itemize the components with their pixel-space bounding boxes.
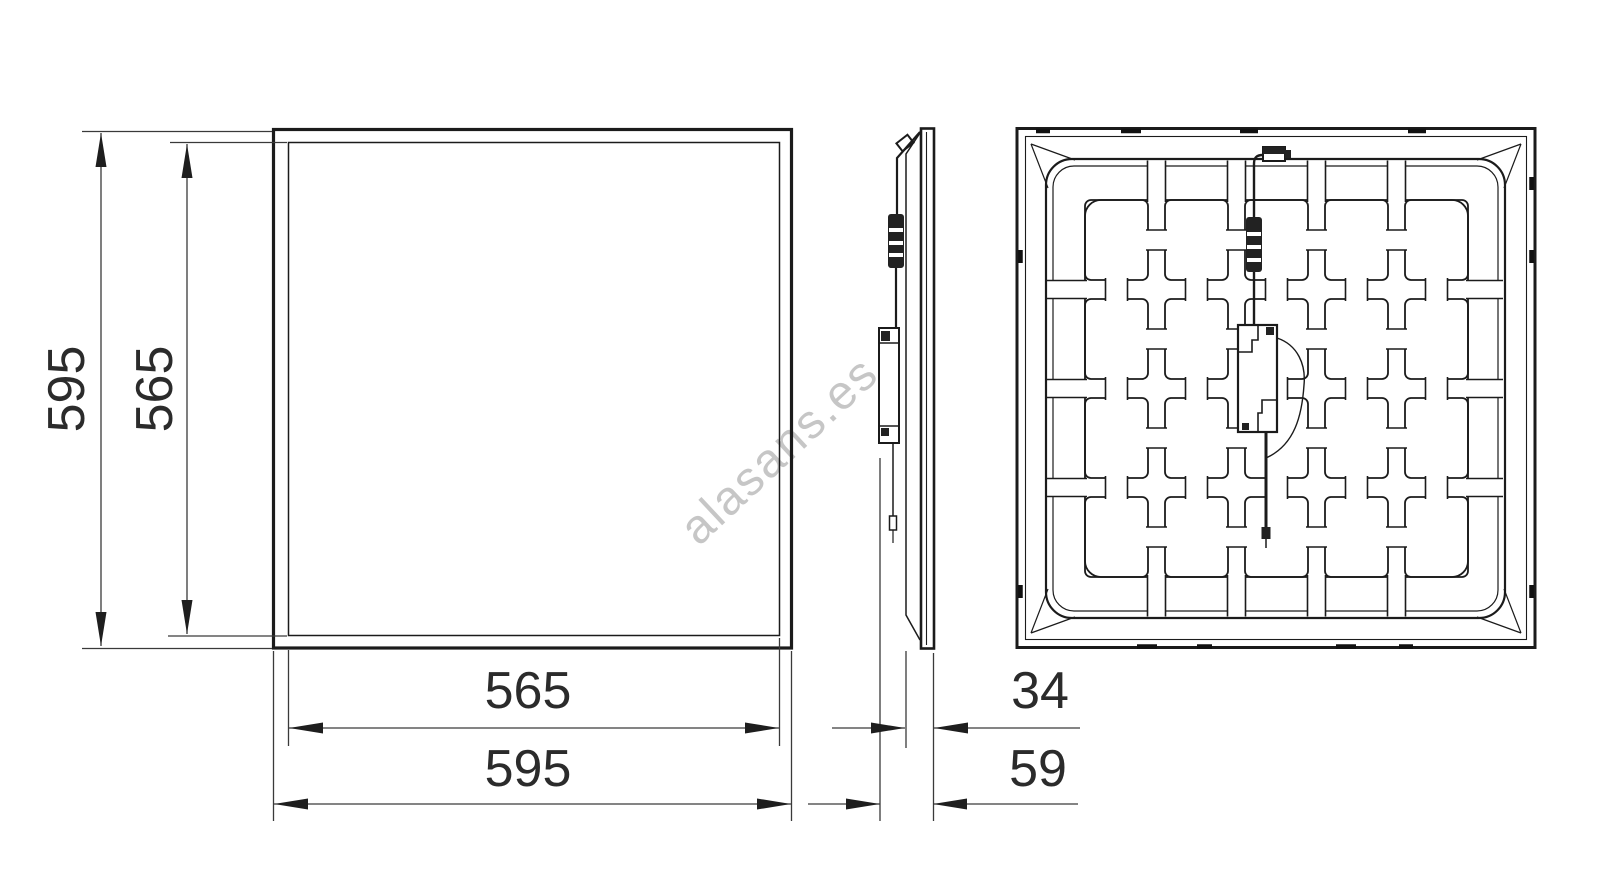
grid-bridge [1306,527,1327,547]
grid-square [1165,299,1228,379]
back-plug-bottom [1262,527,1271,539]
grid-bridge [1306,230,1327,250]
dim-label-depth-panel: 34 [1011,662,1069,720]
side-plug [890,516,897,530]
technical-drawing-page: alasans.es [0,0,1600,892]
back-view [1017,129,1535,648]
grid-square [1085,299,1148,379]
grid-bridge [1306,428,1327,448]
supply-plug-cap [1263,147,1285,154]
grid-bridge [1386,329,1407,349]
grid-bridge [1186,377,1208,400]
dim-label-height-inner: 565 [126,346,184,433]
side-cable-top [897,132,920,214]
grid-bridge [1226,230,1247,250]
side-panel-profile [921,129,934,649]
ext-lines-left [82,132,287,649]
grid-square [1165,398,1228,478]
grid-square [1165,200,1228,280]
dim-label-depth-total: 59 [1009,740,1067,798]
grid-square [1405,497,1468,577]
grid-square [1405,299,1468,379]
grid-tab [1228,162,1246,203]
grid-tab [1048,479,1088,497]
grid-square [1245,497,1308,577]
grid-bridge [1426,377,1448,400]
grid-bridge [1386,428,1407,448]
grid-bridge [1386,527,1407,547]
side-diffuser-edge [906,133,920,640]
grid-bridge [1426,476,1448,499]
grid-tab [1148,575,1166,616]
grid-tab [1228,575,1246,616]
grid-bridge [1146,329,1167,349]
grid-tab [1308,162,1326,203]
back-inline-connector [1246,217,1262,272]
grid-bridge [1146,527,1167,547]
grid-bridge [1146,230,1167,250]
grid-square [1325,398,1388,478]
grid-tab [1048,281,1088,299]
dim-label-width-outer: 595 [485,740,572,798]
grid-bridge [1346,278,1368,301]
driver-terminal-bottom [1242,423,1249,430]
side-driver-latch-top [881,331,890,341]
supply-plug-nub [1285,150,1291,158]
front-inner-panel [289,143,780,636]
grid-bridge [1266,278,1288,301]
grid-bridge [1106,377,1128,400]
dim-label-width-inner: 565 [485,662,572,720]
grid-square [1165,497,1228,577]
grid-tab [1308,575,1326,616]
grid-square [1085,398,1148,478]
grid-bridge [1106,476,1128,499]
grid-tab [1466,281,1503,299]
back-cable-top [1254,155,1263,217]
side-driver-latch-bottom [881,428,889,436]
grid-square [1085,497,1148,577]
grid-bridge [1146,428,1167,448]
grid-bridge [1106,278,1128,301]
technical-drawing: alasans.es [0,0,1600,892]
grid-tab [1148,162,1166,203]
grid-bridge [1226,527,1247,547]
grid-bridge [1186,278,1208,301]
dimensions [82,132,1080,822]
grid-bridge [1346,377,1368,400]
grid-square [1325,299,1388,379]
grid-bridge [1426,278,1448,301]
front-outer-frame [274,130,792,649]
driver-terminal-top [1266,327,1274,335]
grid-tab [1466,380,1503,398]
grid-square [1325,497,1388,577]
grid-bridge [1346,476,1368,499]
dim-label-height-outer: 595 [38,346,96,433]
grid-bridge [1386,230,1407,250]
grid-square [1405,200,1468,280]
grid-square [1325,200,1388,280]
grid-bridge [1266,476,1288,499]
grid-square [1085,200,1148,280]
grid-tab [1466,479,1503,497]
front-view [274,130,792,649]
grid-tab [1388,575,1406,616]
grid-square [1405,398,1468,478]
side-view [879,129,934,649]
side-inline-connector [888,214,904,268]
grid-tab [1388,162,1406,203]
grid-tab [1048,380,1088,398]
grid-bridge [1186,476,1208,499]
grid-bridge [1306,329,1327,349]
